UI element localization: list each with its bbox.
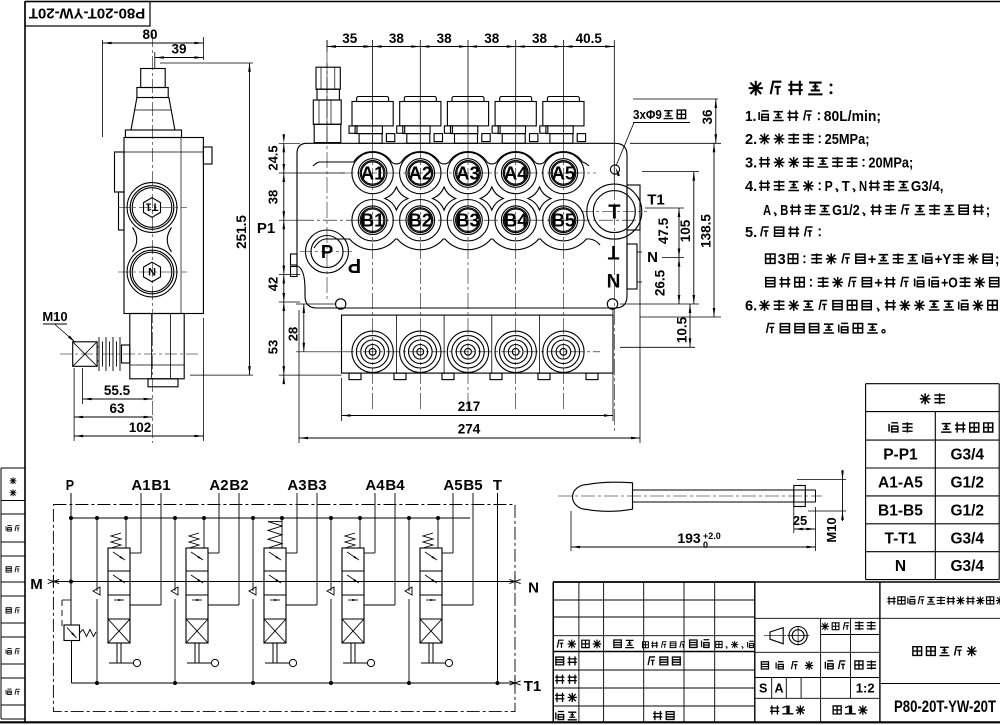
svg-text:M: M (30, 576, 43, 593)
svg-text:N: N (607, 269, 621, 290)
svg-text:B4: B4 (385, 477, 405, 494)
svg-text:N: N (895, 558, 906, 575)
svg-text:28: 28 (286, 327, 301, 341)
svg-text:A2: A2 (209, 477, 228, 494)
svg-text:P: P (348, 254, 361, 276)
svg-text:55.5: 55.5 (104, 383, 131, 398)
svg-text:G1/2: G1/2 (950, 475, 984, 492)
svg-text:53: 53 (266, 340, 281, 354)
svg-text:193: 193 (677, 530, 701, 546)
svg-text:47.5: 47.5 (656, 217, 671, 244)
svg-text:38: 38 (266, 190, 281, 204)
svg-text:35: 35 (342, 31, 358, 46)
svg-text:B2: B2 (229, 477, 248, 494)
svg-text:A5: A5 (443, 477, 462, 494)
svg-text:1.: 1. (745, 109, 756, 125)
svg-text:274: 274 (458, 422, 481, 437)
svg-text:3xΦ9: 3xΦ9 (633, 107, 662, 122)
svg-text:T1: T1 (524, 678, 542, 695)
svg-text:40.5: 40.5 (576, 31, 603, 46)
svg-text:80L/min;: 80L/min; (824, 109, 881, 125)
svg-text:36: 36 (700, 109, 715, 125)
svg-text:M10: M10 (42, 309, 67, 324)
svg-text:T1: T1 (647, 192, 665, 209)
svg-text:S: S (759, 682, 767, 696)
svg-text:38: 38 (484, 31, 500, 46)
svg-text:T: T (842, 179, 850, 195)
svg-text:G3/4,: G3/4, (911, 179, 944, 195)
svg-text:N: N (647, 249, 658, 266)
svg-text:B1: B1 (151, 477, 170, 494)
svg-text:20MPa;: 20MPa; (868, 156, 913, 172)
svg-text:1: 1 (781, 704, 794, 718)
svg-text:M10: M10 (824, 517, 839, 542)
svg-text:T: T (493, 477, 502, 494)
svg-text:+: + (874, 276, 883, 292)
svg-text:T: T (607, 241, 619, 262)
svg-text:0: 0 (703, 540, 708, 550)
svg-text:P: P (825, 179, 833, 195)
svg-text:1:2: 1:2 (856, 681, 875, 696)
svg-text:138.5: 138.5 (699, 214, 714, 248)
svg-text:P: P (66, 477, 74, 494)
svg-text:3.: 3. (745, 156, 757, 172)
svg-text:26.5: 26.5 (653, 269, 668, 296)
svg-text:G3/4: G3/4 (950, 558, 984, 575)
svg-text:T: T (608, 202, 620, 224)
svg-text:T1: T1 (146, 201, 159, 213)
svg-text:N: N (859, 179, 867, 195)
svg-text:;: ; (986, 203, 990, 219)
svg-text:A1: A1 (131, 477, 150, 494)
svg-text:102: 102 (129, 420, 152, 435)
svg-text:10.5: 10.5 (675, 316, 690, 343)
svg-text:6.: 6. (745, 299, 757, 315)
svg-text:;: ; (995, 252, 999, 268)
svg-text:G1/2: G1/2 (832, 203, 860, 219)
svg-text:42: 42 (266, 277, 281, 291)
svg-text:N: N (528, 580, 539, 597)
svg-text:A3: A3 (287, 477, 306, 494)
svg-text:24.5: 24.5 (266, 145, 281, 170)
svg-text:63: 63 (109, 401, 125, 416)
svg-text:P80-20T-YW-20T: P80-20T-YW-20T (29, 5, 145, 22)
svg-text:A: A (763, 203, 771, 219)
svg-text:P80-20T-YW-20T: P80-20T-YW-20T (894, 698, 996, 716)
svg-text:+Y: +Y (935, 252, 952, 268)
svg-text:25MPa;: 25MPa; (825, 132, 870, 148)
svg-text:A4: A4 (365, 477, 385, 494)
svg-text:1: 1 (843, 704, 856, 718)
svg-text:T-T1: T-T1 (885, 530, 917, 547)
svg-text:39: 39 (171, 42, 186, 57)
svg-text:38: 38 (389, 31, 405, 46)
svg-text:38: 38 (532, 31, 548, 46)
svg-text:G3/4: G3/4 (950, 447, 984, 464)
svg-text:P-P1: P-P1 (883, 447, 918, 464)
svg-text:B5: B5 (463, 477, 482, 494)
svg-text:G1/2: G1/2 (950, 502, 984, 519)
svg-text:B3: B3 (307, 477, 326, 494)
svg-text:25: 25 (793, 513, 807, 528)
svg-text:38: 38 (437, 31, 453, 46)
svg-text:5.: 5. (745, 225, 757, 241)
svg-text:+: + (868, 252, 877, 268)
svg-text:N: N (148, 265, 156, 277)
svg-text:105: 105 (678, 219, 693, 242)
svg-text:+O: +O (941, 276, 958, 292)
svg-text:251.5: 251.5 (234, 215, 249, 249)
svg-text:80: 80 (142, 27, 157, 42)
svg-text:B1-B5: B1-B5 (878, 502, 923, 519)
svg-text:3: 3 (778, 252, 786, 268)
svg-text:A: A (774, 682, 783, 696)
svg-text:2.: 2. (745, 132, 757, 148)
svg-text:217: 217 (458, 399, 481, 414)
svg-text:4.: 4. (745, 179, 757, 195)
svg-text:P1: P1 (257, 220, 275, 237)
svg-text:G3/4: G3/4 (950, 530, 984, 547)
svg-text:B: B (780, 203, 788, 219)
svg-text:A1-A5: A1-A5 (878, 475, 923, 492)
